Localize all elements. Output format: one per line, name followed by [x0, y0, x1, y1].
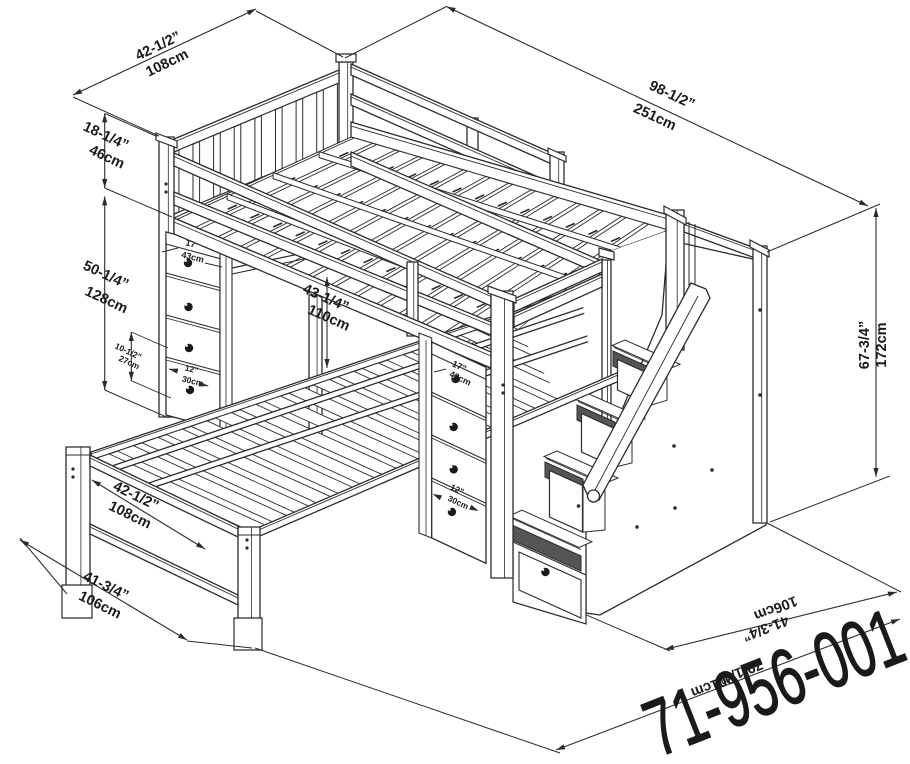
svg-text:172cm: 172cm — [874, 322, 890, 367]
svg-text:67-3/4”: 67-3/4” — [857, 321, 873, 369]
